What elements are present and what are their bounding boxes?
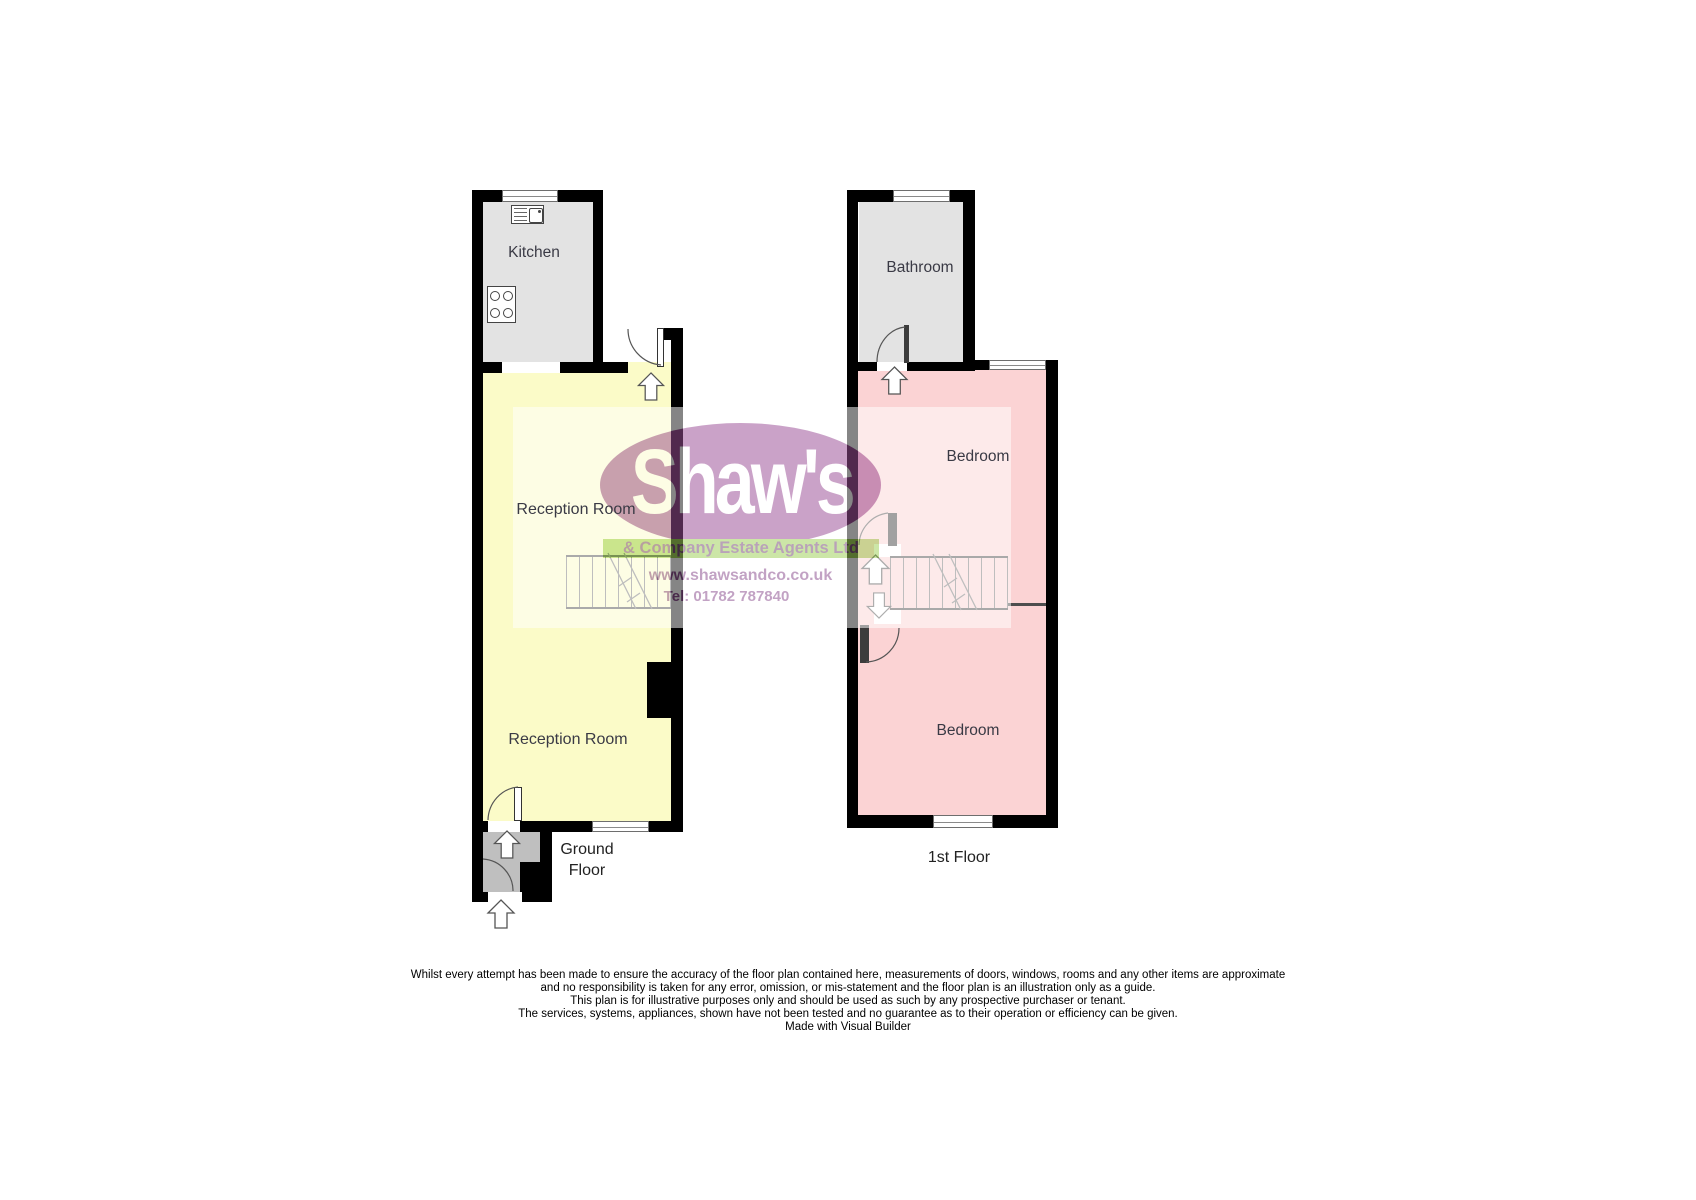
- back-entry-arrow-icon: [637, 372, 665, 401]
- ff-stair-break-icon: [917, 552, 987, 612]
- reception-window: [592, 821, 649, 832]
- ff-stair-divider-wall: [1008, 603, 1046, 606]
- reception-room-upper-label: Reception Room: [516, 501, 635, 519]
- floorplan-page: { "watermark": { "brand": "Shaw's", "tag…: [0, 0, 1696, 1200]
- bathroom-label: Bathroom: [886, 259, 953, 277]
- bedroom-lower-label: Bedroom: [937, 722, 1000, 740]
- kitchen-opening: [502, 362, 560, 373]
- gf-stair-break-icon: [592, 551, 662, 611]
- gf-chimney-breast: [647, 662, 671, 718]
- hob-burner-icon: [503, 291, 513, 301]
- bathroom-entry-arrow-icon: [881, 366, 908, 395]
- disclaimer-line: and no responsibility is taken for any e…: [0, 982, 1696, 995]
- disclaimer-line: The services, systems, appliances, shown…: [0, 1008, 1696, 1021]
- hall-entry-arrow-icon: [493, 830, 521, 859]
- ff-right-wall: [1046, 360, 1058, 828]
- sink-tap-icon: [538, 210, 541, 213]
- reception-room-lower-label: Reception Room: [508, 731, 627, 749]
- disclaimer-text: Whilst every attempt has been made to en…: [0, 969, 1696, 1034]
- hall-top-door-arc-icon: [482, 782, 526, 826]
- bedroom-lower-window: [933, 815, 993, 828]
- front-door-arc-icon: [478, 854, 522, 898]
- disclaimer-line: Whilst every attempt has been made to en…: [0, 969, 1696, 982]
- bedroom-lower-door-arc-icon: [862, 622, 906, 666]
- gf-hall-right-wall: [540, 821, 552, 902]
- stairs-up-arrow-icon: [861, 554, 890, 585]
- bathroom-window: [893, 190, 950, 202]
- kitchen-label: Kitchen: [508, 244, 560, 262]
- kitchen-room: [483, 202, 593, 362]
- hob-burner-icon: [503, 308, 513, 318]
- ground-floor-label-line2: Floor: [560, 860, 613, 881]
- bathroom-door-arc-icon: [872, 322, 916, 368]
- bedroom-upper-label: Bedroom: [947, 448, 1010, 466]
- ff-bathroom-right-wall: [963, 190, 975, 370]
- front-entry-arrow-icon: [487, 898, 515, 930]
- first-floor-label: 1st Floor: [928, 847, 990, 868]
- disclaimer-line: This plan is for illustrative purposes o…: [0, 995, 1696, 1008]
- sink-drainer-icon: [514, 208, 527, 221]
- hob-burner-icon: [490, 308, 500, 318]
- kitchen-hob-icon: [487, 286, 516, 323]
- gf-right-wall: [671, 328, 683, 832]
- back-door-arc-icon: [620, 322, 670, 372]
- ground-floor-label: Ground Floor: [560, 839, 613, 881]
- kitchen-window: [502, 190, 558, 202]
- stairs-down-arrow-icon: [866, 592, 892, 619]
- disclaimer-line: Made with Visual Builder: [0, 1021, 1696, 1034]
- hob-burner-icon: [490, 291, 500, 301]
- ground-floor-label-line1: Ground: [560, 839, 613, 860]
- bedroom-upper-door-arc-icon: [855, 509, 899, 553]
- gf-kitchen-right-wall: [593, 190, 603, 363]
- sink-bowl-icon: [529, 208, 543, 223]
- kitchen-sink-icon: [511, 205, 544, 224]
- bedroom-upper-window: [989, 360, 1046, 370]
